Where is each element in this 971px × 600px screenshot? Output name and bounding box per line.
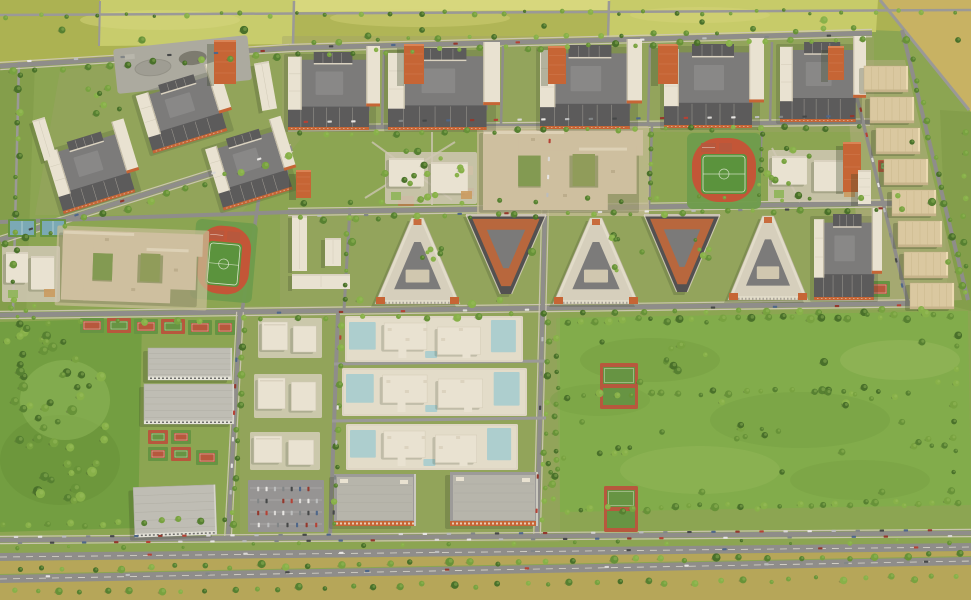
masterplan-aerial-render: [0, 0, 971, 600]
masterplan-stage: [0, 0, 971, 600]
light-tint-overlay: [0, 0, 971, 600]
